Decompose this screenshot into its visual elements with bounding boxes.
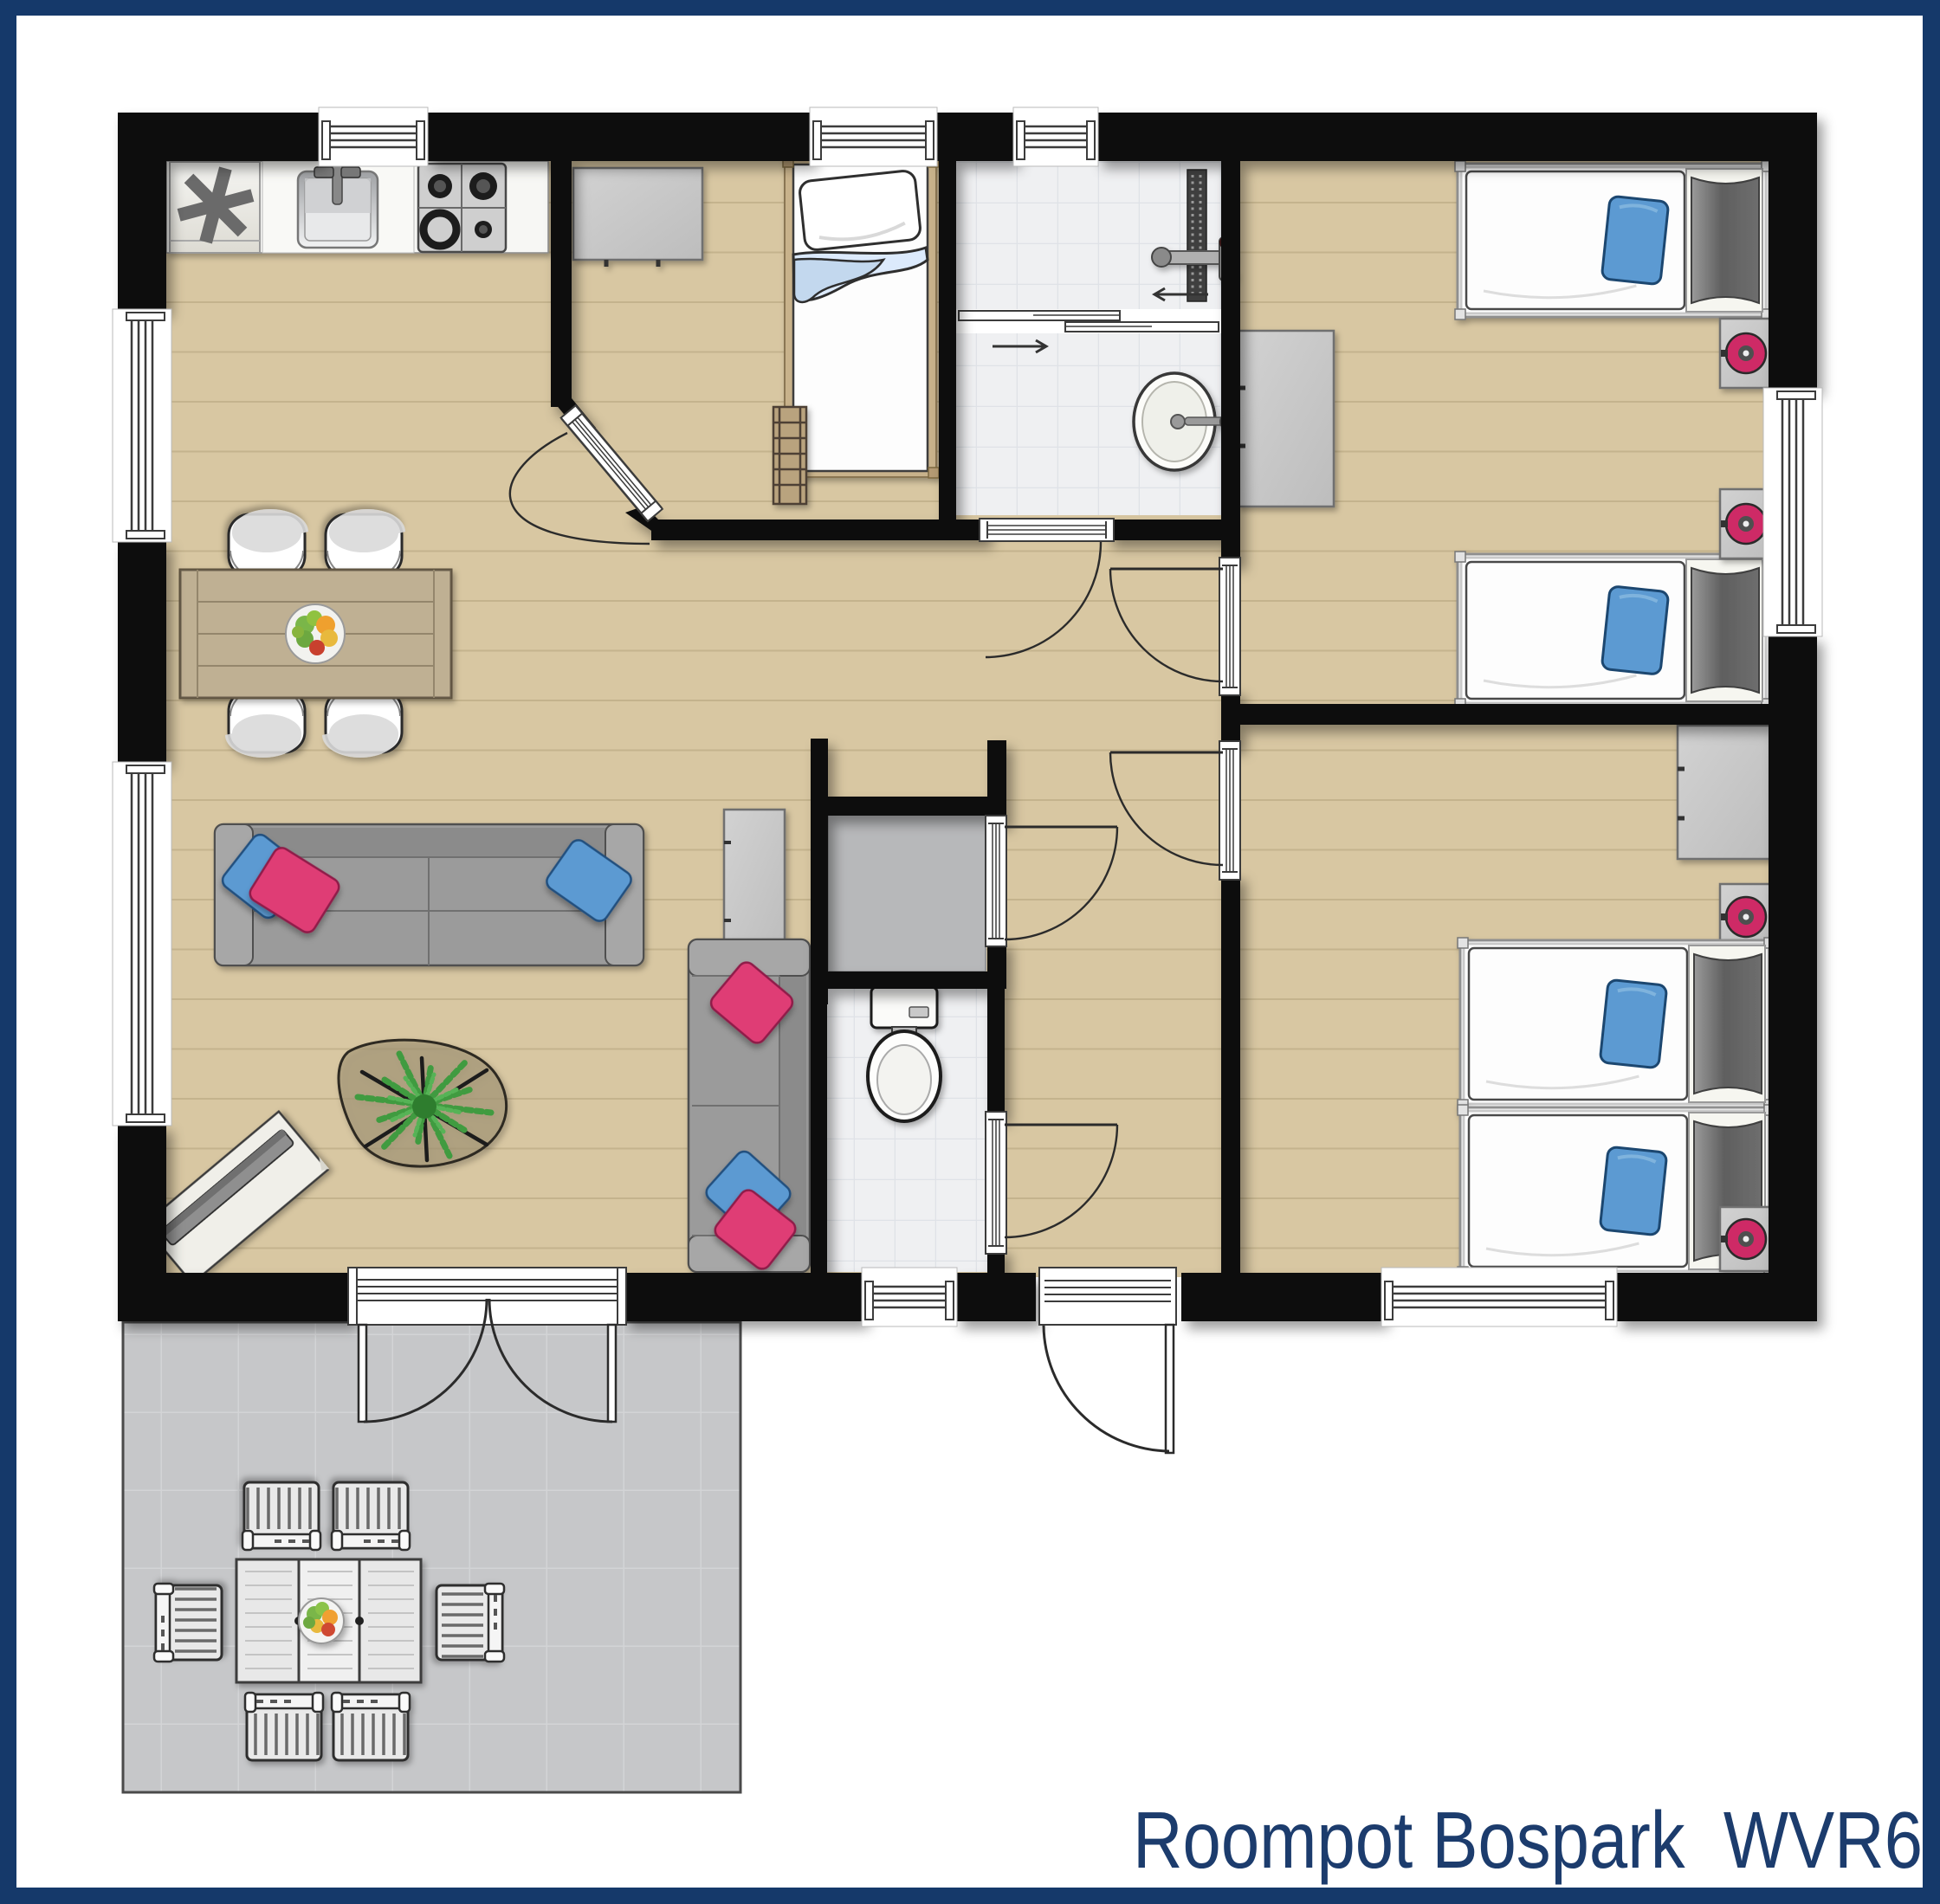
svg-text:Roompot Bospark WVR6: Roompot Bospark WVR6 xyxy=(1133,1795,1923,1885)
